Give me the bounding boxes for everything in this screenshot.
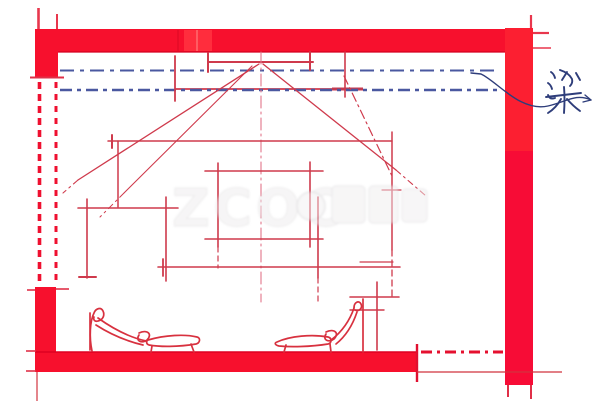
watermark-logo-icon [297,192,325,220]
beam-lines [60,71,497,91]
hand-drawn-room-section: ZCOO [0,0,600,401]
ceiling-slab [35,8,533,52]
watermark-cjk-glyph-1 [332,186,365,223]
right-wall [505,15,551,399]
ceiling-slab-light-segment [184,30,212,51]
watermark: ZCOO [172,179,427,239]
right-wall-lower [505,151,533,385]
ceiling-slab-band [35,29,533,52]
fan-ray-left-1-ext [63,180,78,193]
floor-slab [26,344,562,401]
watermark-cjk-glyph-3 [402,189,427,222]
chaise-right [275,299,363,352]
right-wall-upper [505,28,533,151]
chaise-left [90,309,200,352]
sketch-canvas: ZCOO [0,0,600,401]
fan-ray-left-2-ext [100,193,124,217]
left-wall-lower-column [35,287,56,352]
chaise-left-backrest [90,309,104,351]
floor-slab-band [35,352,417,372]
watermark-cjk-glyph-2 [369,186,398,223]
left-wall-top-block [35,29,58,78]
fan-ray-left-1 [78,64,259,180]
fan-ray-left-2 [124,66,252,193]
fan-ray-right-1 [263,64,396,170]
chaise-right-cushion [275,336,331,347]
beam-label-character [546,70,581,113]
left-wall [27,29,69,352]
chaise-right-head-curl [354,302,362,311]
